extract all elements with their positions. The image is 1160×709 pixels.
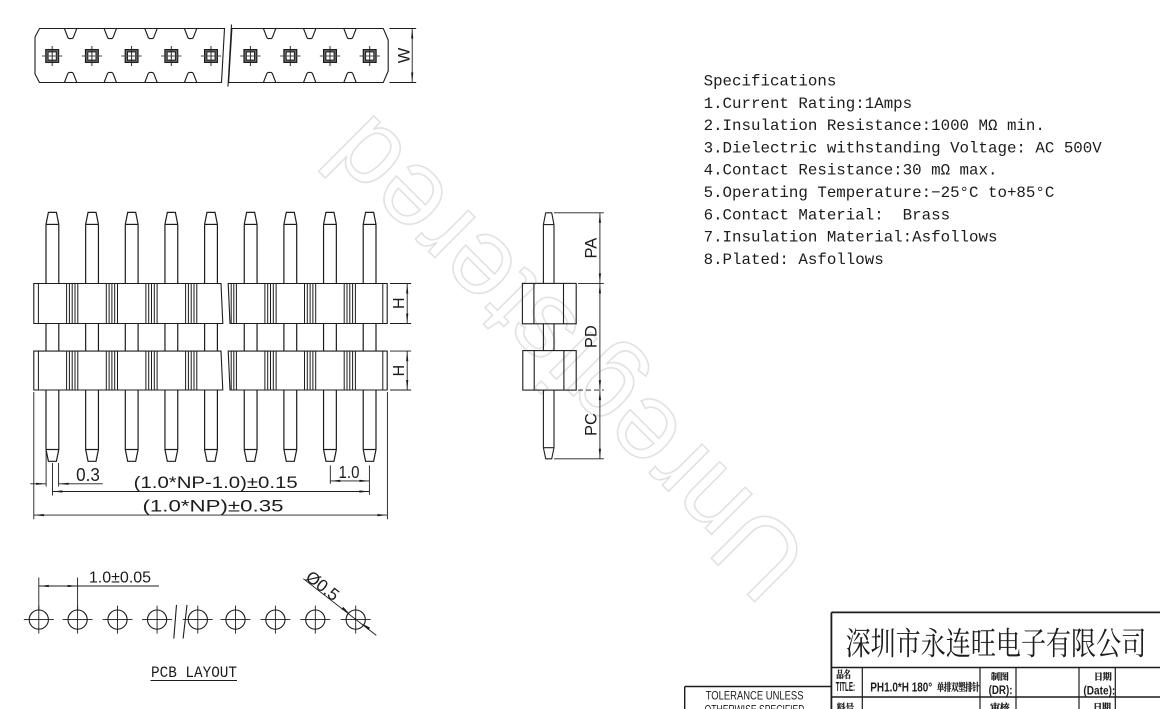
svg-text:PCB LAYOUT: PCB LAYOUT (151, 664, 237, 682)
svg-text:PC: PC (583, 413, 601, 436)
svg-text:1.0: 1.0 (339, 462, 360, 482)
svg-text:PD: PD (583, 325, 601, 348)
svg-text:7.Insulation Material:Asfollow: 7.Insulation Material:Asfollows (704, 229, 998, 247)
svg-text:Specifications: Specifications (704, 73, 837, 91)
svg-text:3.Dielectric withstanding Volt: 3.Dielectric withstanding Voltage: AC 50… (704, 139, 1103, 157)
svg-text:0.3: 0.3 (76, 465, 100, 485)
svg-text:(Date):: (Date): (1083, 685, 1115, 697)
svg-text:TOLERANCE UNLESS: TOLERANCE UNLESS (706, 688, 804, 702)
svg-text:8.Plated: Asfollows: 8.Plated: Asfollows (704, 251, 884, 269)
svg-text:6.Contact Material: Brass: 6.Contact Material: Brass (704, 206, 950, 224)
svg-text:(1.0*NP)±0.35: (1.0*NP)±0.35 (143, 496, 284, 515)
svg-text:H: H (391, 365, 408, 377)
svg-text:H: H (391, 297, 408, 309)
svg-text:TITLE:: TITLE: (836, 680, 855, 694)
svg-text:PH1.0*H 180°: PH1.0*H 180° (870, 679, 932, 694)
svg-text:PA: PA (583, 238, 601, 259)
svg-text:OTHERWISE SPECIFIED: OTHERWISE SPECIFIED (705, 702, 805, 709)
svg-text:2.Insulation Resistance:1000 M: 2.Insulation Resistance:1000 MΩ min. (704, 117, 1045, 135)
svg-text:1.0±0.05: 1.0±0.05 (89, 570, 151, 587)
svg-text:(1.0*NP-1.0)±0.15: (1.0*NP-1.0)±0.15 (134, 473, 298, 492)
svg-text:4.Contact Resistance:30 mΩ max: 4.Contact Resistance:30 mΩ max. (704, 162, 998, 180)
svg-text:W: W (396, 47, 414, 63)
svg-text:1.Current Rating:1Amps: 1.Current Rating:1Amps (704, 95, 913, 113)
svg-text:(DR):: (DR): (989, 685, 1013, 697)
svg-text:5.Operating Temperature:−25°C: 5.Operating Temperature:−25°C to+85°C (704, 184, 1055, 202)
